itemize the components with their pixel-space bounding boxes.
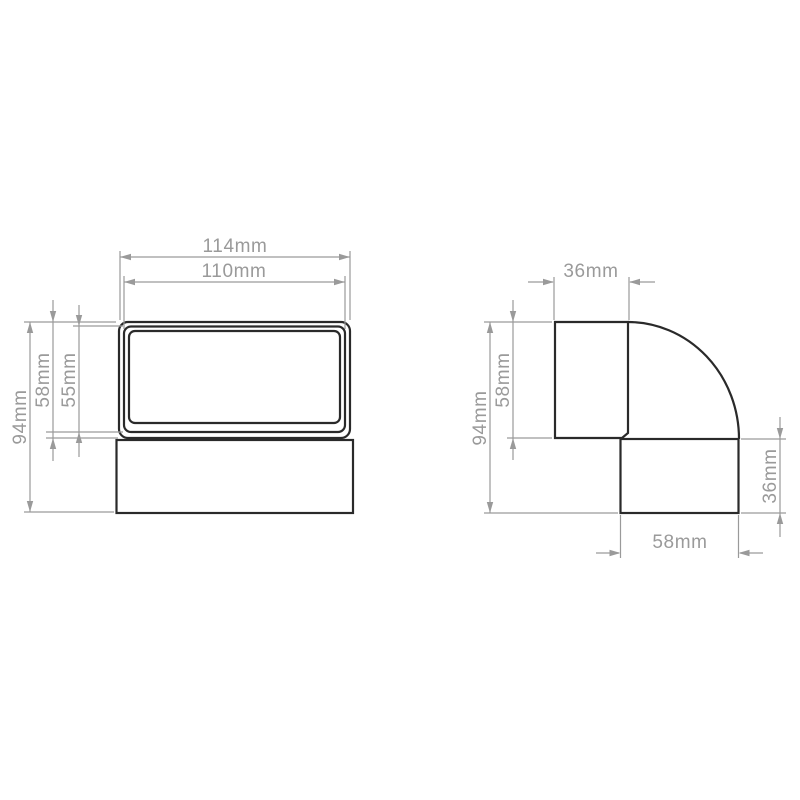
dim-side-top-width: 36mm xyxy=(528,261,655,320)
dim-label: 36mm xyxy=(760,448,781,503)
dim-side-outlet-height: 36mm xyxy=(741,417,786,537)
elbow-outlet-profile xyxy=(621,439,739,513)
dim-front-inner-width: 110mm xyxy=(124,261,345,329)
elbow-bend-arc xyxy=(628,322,739,439)
front-view: 114mm 110mm 94mm 58mm xyxy=(10,236,353,513)
dim-label: 36mm xyxy=(563,261,618,282)
socket-flange-mid xyxy=(124,327,345,433)
socket-opening-inner xyxy=(129,331,340,423)
dim-label: 58mm xyxy=(493,352,514,407)
extension-lines xyxy=(24,322,116,512)
dim-side-outlet-length: 58mm xyxy=(596,515,763,558)
dim-label: 114mm xyxy=(203,236,268,257)
dim-label: 58mm xyxy=(33,352,54,407)
dim-label: 94mm xyxy=(10,389,31,444)
dim-label: 110mm xyxy=(202,261,267,282)
dim-front-inner-height: 55mm xyxy=(46,305,123,457)
socket-flange-outer xyxy=(119,322,350,438)
dimension-drawing: 114mm 110mm 94mm 58mm xyxy=(0,0,800,800)
dim-side-total-height: 94mm xyxy=(470,322,618,513)
elbow-socket-profile xyxy=(555,322,628,438)
extension-lines xyxy=(554,277,629,320)
dim-side-socket-height: 58mm xyxy=(493,300,552,460)
front-view-outline xyxy=(117,322,354,513)
dim-label: 55mm xyxy=(59,352,80,407)
extension-lines xyxy=(484,322,618,513)
dim-front-total-height: 94mm xyxy=(10,322,116,512)
extension-lines xyxy=(46,326,123,432)
dim-label: 94mm xyxy=(470,390,491,445)
side-view: 36mm 94mm 58mm 36mm xyxy=(470,261,786,558)
duct-body xyxy=(117,440,354,513)
technical-drawing-canvas: 114mm 110mm 94mm 58mm xyxy=(0,0,800,800)
dim-label: 58mm xyxy=(652,532,707,553)
side-view-outline xyxy=(555,322,739,513)
